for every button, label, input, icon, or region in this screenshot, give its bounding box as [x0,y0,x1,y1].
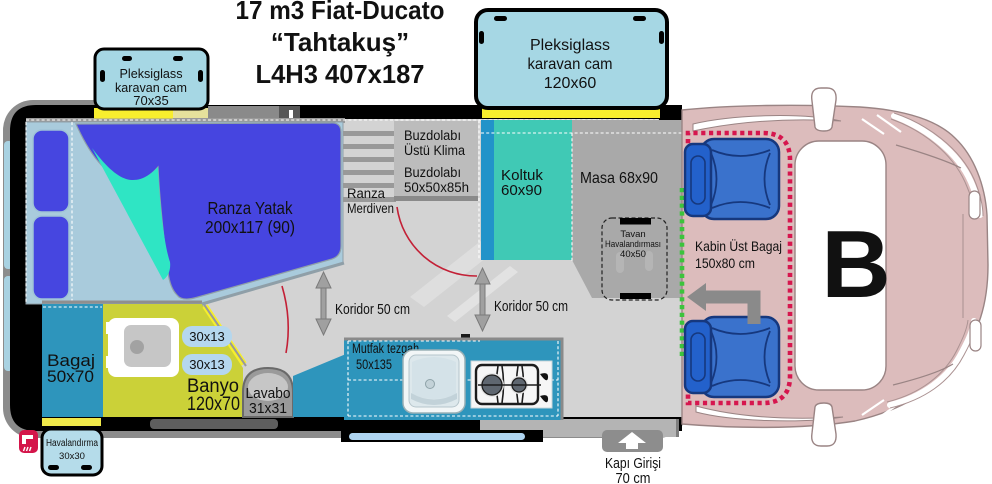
svg-text:Ranza Yatak: Ranza Yatak [208,198,293,218]
svg-text:50x70: 50x70 [47,367,94,386]
svg-text:L4H3 407x187: L4H3 407x187 [256,59,425,89]
svg-text:B: B [821,211,890,318]
svg-text:70 cm: 70 cm [616,470,651,484]
svg-text:150x80 cm: 150x80 cm [695,255,755,271]
svg-text:karavan cam: karavan cam [528,56,613,73]
svg-text:Buzdolabı: Buzdolabı [404,128,461,143]
svg-text:Lavabo: Lavabo [246,386,291,402]
svg-text:60x90: 60x90 [501,182,542,199]
svg-text:30x30: 30x30 [59,451,85,462]
svg-text:Üstü Klima: Üstü Klima [404,143,465,158]
svg-text:31x31: 31x31 [249,401,287,417]
svg-text:“Tahtakuş”: “Tahtakuş” [271,27,409,57]
svg-text:Merdiven: Merdiven [347,201,394,216]
svg-text:Buzdolabı: Buzdolabı [404,165,461,180]
svg-text:Pleksiglass: Pleksiglass [120,66,183,81]
svg-text:120x60: 120x60 [544,75,597,92]
svg-text:Pleksiglass: Pleksiglass [530,37,610,54]
svg-text:Koridor 50 cm: Koridor 50 cm [335,301,410,318]
svg-text:Kabin Üst Bagaj: Kabin Üst Bagaj [695,237,782,254]
svg-text:17 m3 Fiat-Ducato: 17 m3 Fiat-Ducato [236,0,445,25]
svg-text:120x70: 120x70 [187,394,240,415]
svg-text:30x13: 30x13 [189,357,224,372]
svg-text:200x117 (90): 200x117 (90) [205,217,295,237]
svg-text:Ranza: Ranza [347,186,385,201]
svg-text:50x135: 50x135 [356,357,392,372]
svg-text:50x50x85h: 50x50x85h [404,180,469,195]
svg-text:70x35: 70x35 [133,93,168,108]
svg-text:Koridor 50 cm: Koridor 50 cm [494,298,568,315]
svg-text:Havalandırma: Havalandırma [46,438,98,449]
svg-text:30x13: 30x13 [189,329,224,344]
svg-text:Masa 68x90: Masa 68x90 [580,170,658,187]
svg-text:40x50: 40x50 [620,249,646,260]
